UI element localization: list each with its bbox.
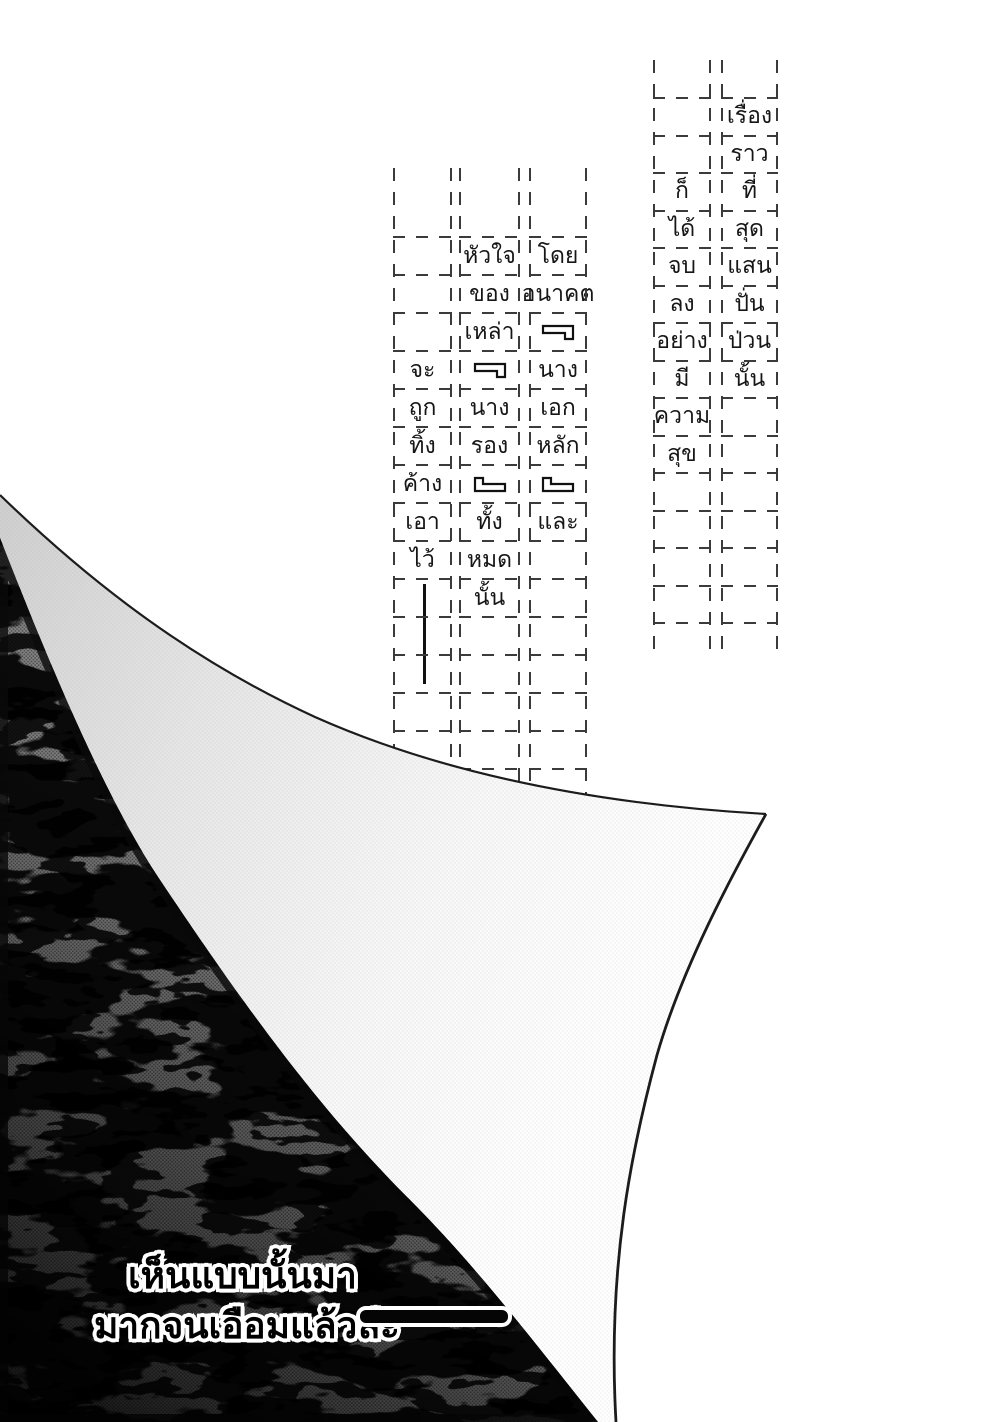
page-curl-art: [0, 0, 1000, 1422]
manga-page: เรื่องราวที่สุดแสนปั่นป่วนนั้น ก็ได้จบลง…: [0, 0, 1000, 1422]
caption-line-2: มากจนเอือมแล้วล่ะ: [94, 1296, 400, 1355]
long-dash: [356, 1306, 512, 1327]
